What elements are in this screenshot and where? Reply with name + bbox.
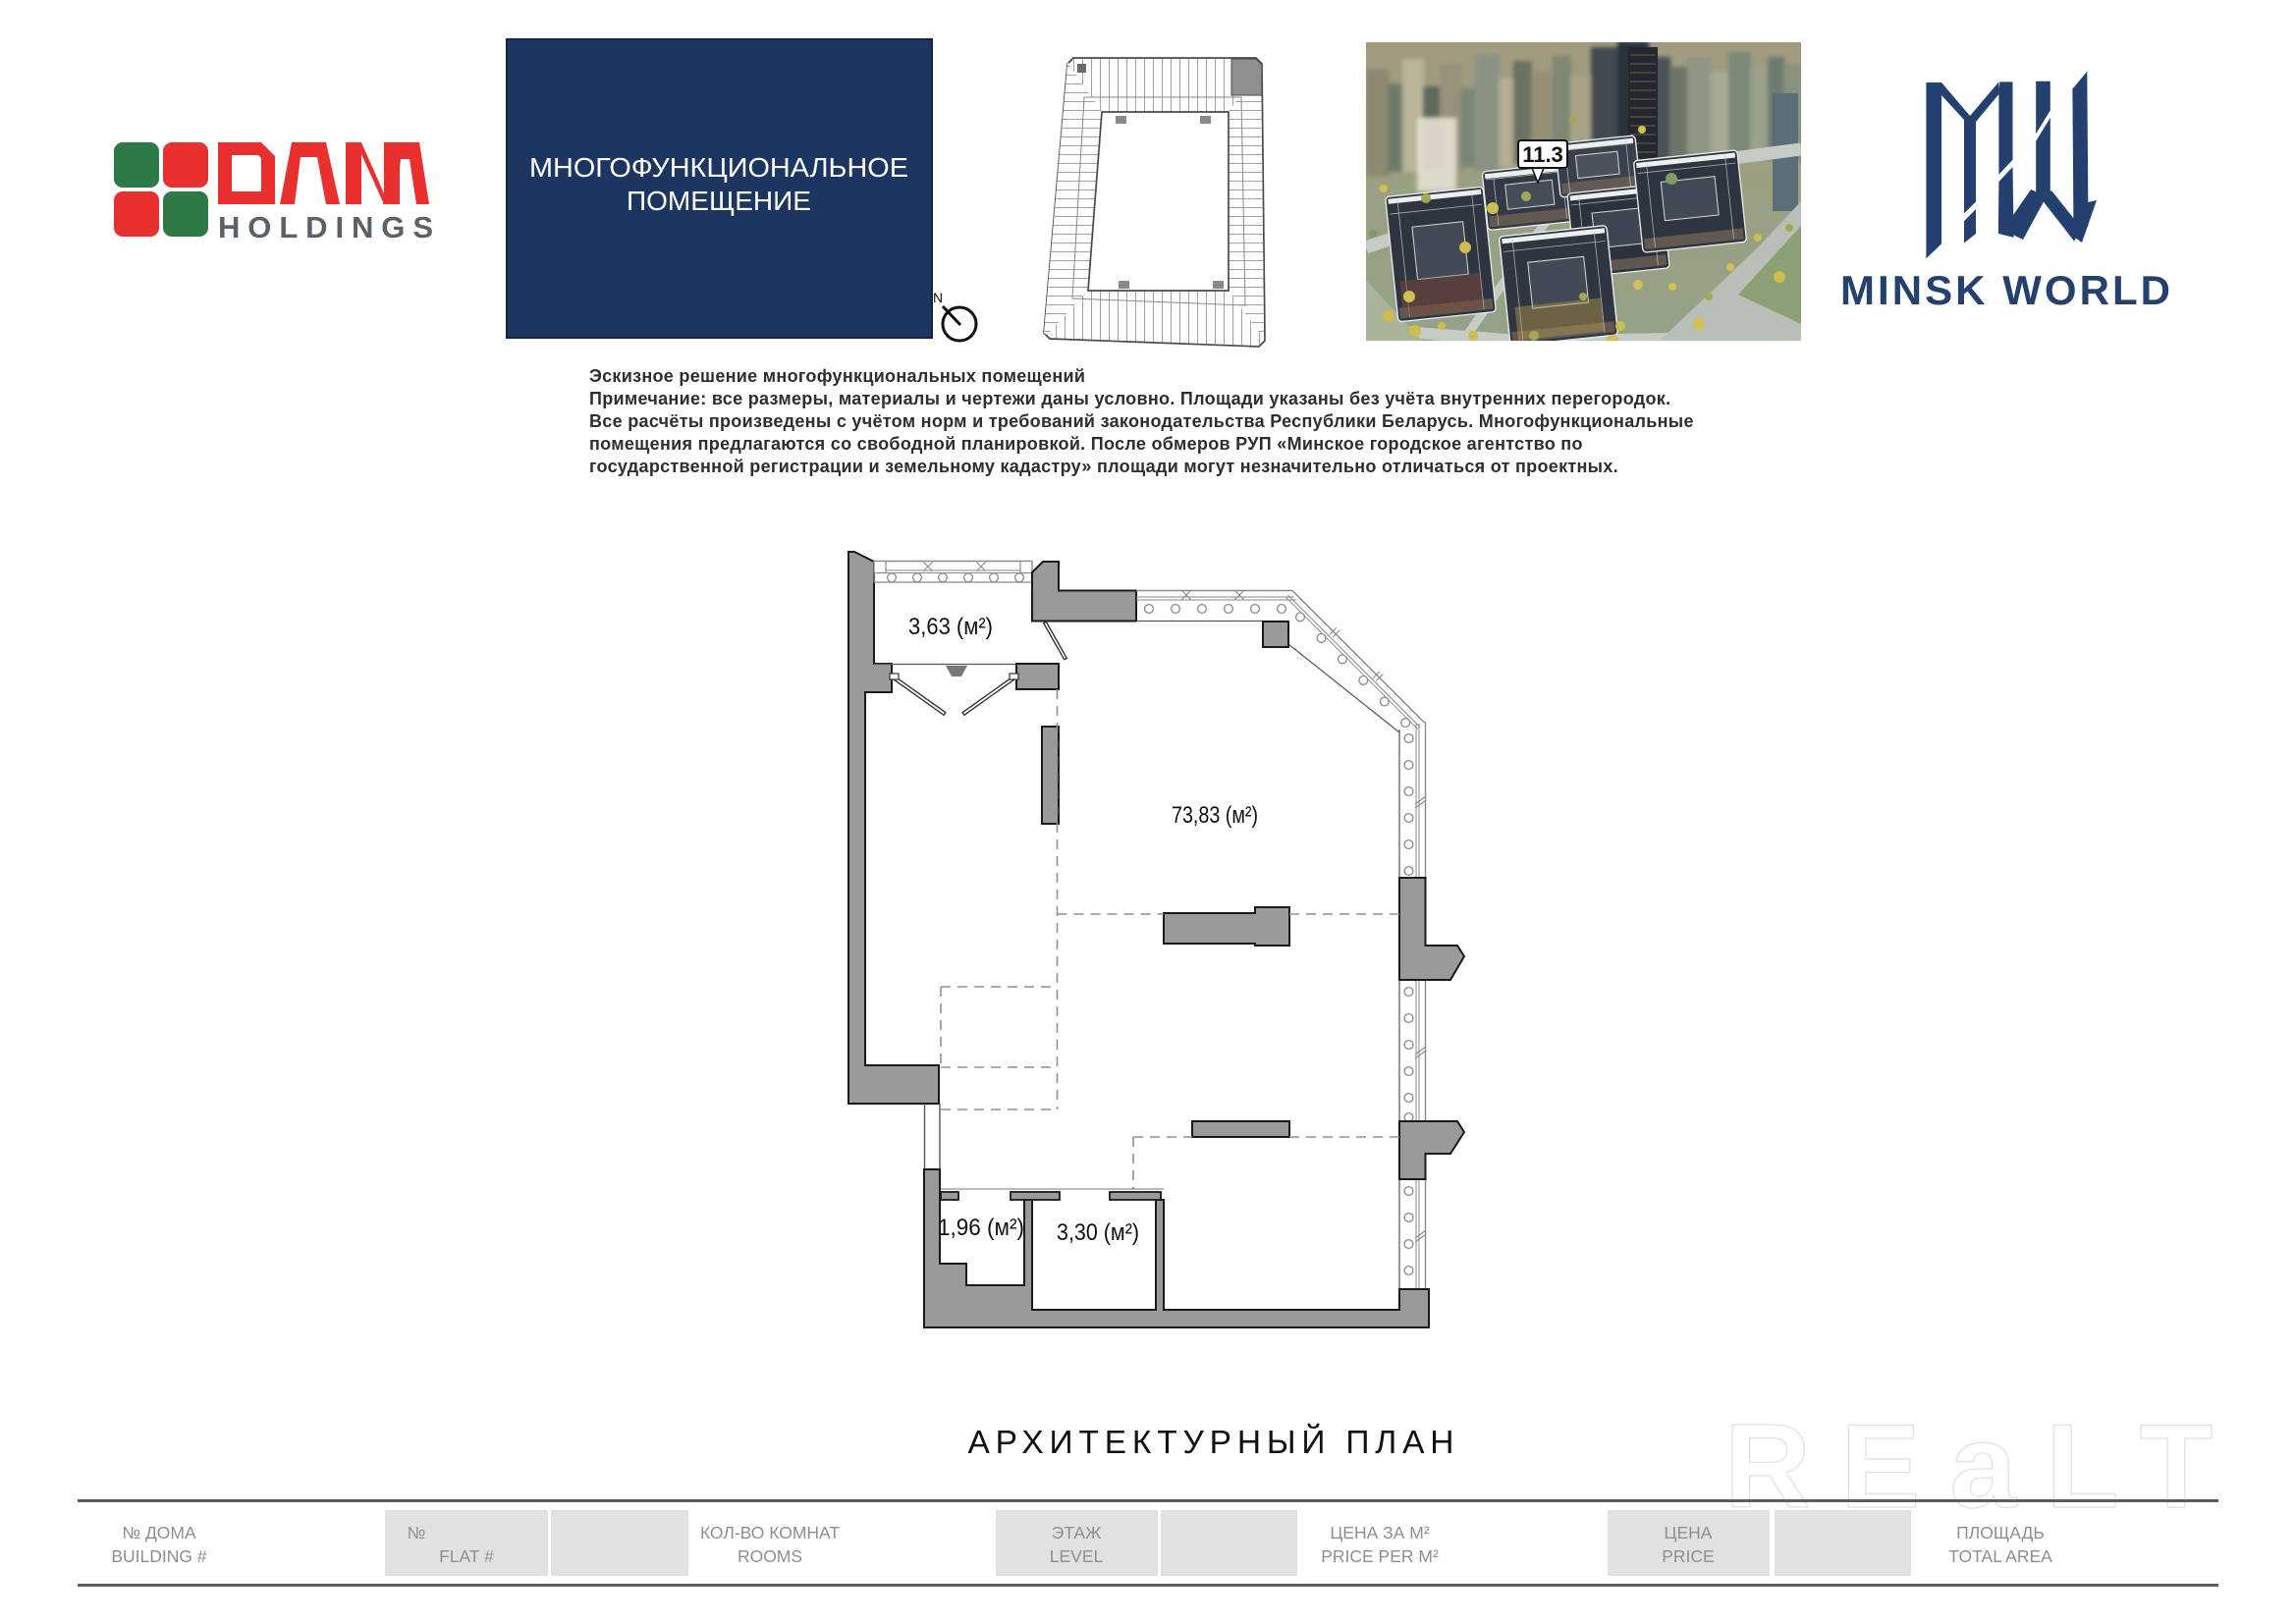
svg-text:№ ДОМА: № ДОМА bbox=[122, 1523, 196, 1542]
svg-text:LEVEL: LEVEL bbox=[1050, 1546, 1104, 1566]
svg-text:PRICE: PRICE bbox=[1662, 1546, 1714, 1566]
svg-text:1,96 (м²): 1,96 (м²) bbox=[938, 1215, 1024, 1241]
svg-text:3,63 (м²): 3,63 (м²) bbox=[908, 614, 993, 640]
svg-text:государственной регистрации и: государственной регистрации и земельному… bbox=[589, 457, 1618, 476]
svg-text:PRICE PER M²: PRICE PER M² bbox=[1321, 1546, 1439, 1566]
svg-text:11.3: 11.3 bbox=[1522, 142, 1563, 167]
svg-text:Все расчёты произведены с учёт: Все расчёты произведены с учётом норм и … bbox=[589, 411, 1694, 431]
svg-text:№: № bbox=[408, 1523, 426, 1542]
svg-text:73,83 (м²): 73,83 (м²) bbox=[1172, 802, 1258, 829]
svg-text:ROOMS: ROOMS bbox=[738, 1546, 802, 1566]
svg-text:MINSK WORLD: MINSK WORLD bbox=[1840, 267, 2170, 313]
svg-text:3,30 (м²): 3,30 (м²) bbox=[1057, 1219, 1139, 1246]
svg-text:ПОМЕЩЕНИЕ: ПОМЕЩЕНИЕ bbox=[627, 186, 811, 216]
svg-text:HOLDINGS: HOLDINGS bbox=[218, 210, 433, 244]
svg-text:ЭТАЖ: ЭТАЖ bbox=[1052, 1523, 1102, 1542]
svg-text:Примечание: все размеры, матер: Примечание: все размеры, материалы и чер… bbox=[589, 389, 1670, 408]
svg-text:FLAT #: FLAT # bbox=[439, 1546, 494, 1566]
svg-text:Эскизное решение многофункцион: Эскизное решение многофункциональных пом… bbox=[589, 366, 1085, 386]
svg-text:ЦЕНА ЗА М²: ЦЕНА ЗА М² bbox=[1330, 1523, 1429, 1542]
svg-text:N: N bbox=[933, 290, 943, 305]
svg-text:ПЛОЩАДЬ: ПЛОЩАДЬ bbox=[1956, 1523, 2045, 1542]
svg-text:TOTAL AREA: TOTAL AREA bbox=[1948, 1546, 2052, 1566]
svg-text:МНОГОФУНКЦИОНАЛЬНОЕ: МНОГОФУНКЦИОНАЛЬНОЕ bbox=[529, 152, 908, 183]
svg-text:КОЛ-ВО КОМНАТ: КОЛ-ВО КОМНАТ bbox=[700, 1523, 840, 1542]
svg-text:ЦЕНА: ЦЕНА bbox=[1665, 1523, 1713, 1542]
svg-text:BUILDING #: BUILDING # bbox=[111, 1546, 207, 1566]
svg-text:помещения предлагаются со своб: помещения предлагаются со свободной план… bbox=[589, 434, 1583, 454]
svg-text:АРХИТЕКТУРНЫЙ ПЛАН: АРХИТЕКТУРНЫЙ ПЛАН bbox=[968, 1424, 1454, 1461]
